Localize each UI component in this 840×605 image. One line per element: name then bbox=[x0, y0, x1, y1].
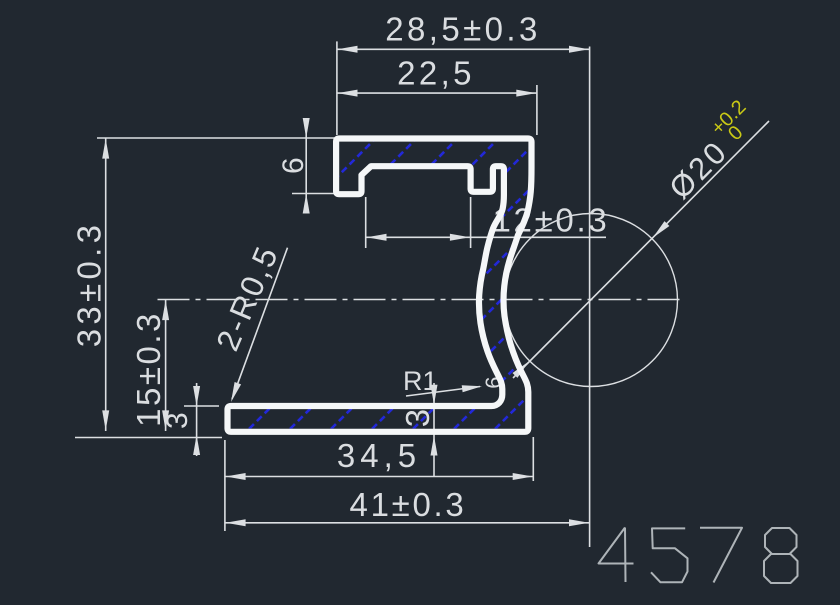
svg-text:34,5: 34,5 bbox=[337, 437, 421, 474]
svg-text:R1: R1 bbox=[403, 366, 438, 396]
svg-text:28,5±0.3: 28,5±0.3 bbox=[385, 11, 540, 48]
svg-text:3: 3 bbox=[161, 411, 194, 429]
svg-text:12±0.3: 12±0.3 bbox=[493, 202, 610, 239]
svg-text:15±0.3: 15±0.3 bbox=[130, 311, 167, 427]
svg-text:22,5: 22,5 bbox=[397, 55, 475, 92]
svg-text:6: 6 bbox=[277, 156, 310, 174]
svg-text:41±0.3: 41±0.3 bbox=[350, 486, 467, 523]
svg-text:3: 3 bbox=[399, 408, 436, 428]
svg-text:33±0.3: 33±0.3 bbox=[71, 221, 108, 348]
